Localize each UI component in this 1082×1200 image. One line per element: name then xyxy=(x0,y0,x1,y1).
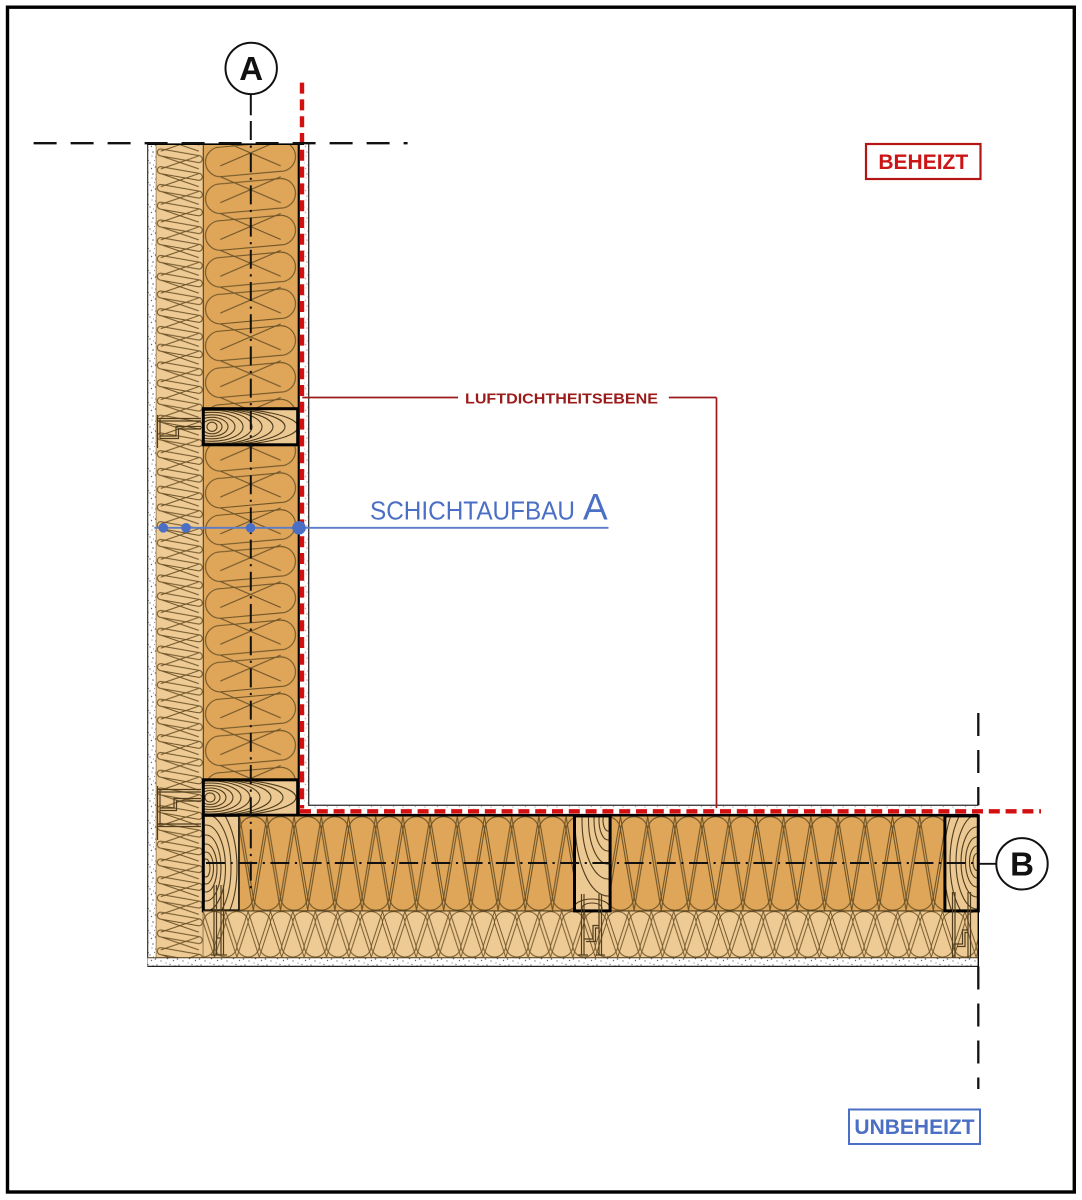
svg-text:UNBEHEIZT: UNBEHEIZT xyxy=(854,1116,974,1139)
svg-text:BEHEIZT: BEHEIZT xyxy=(878,151,968,174)
svg-text:SCHICHTAUFBAU: SCHICHTAUFBAU xyxy=(370,495,575,525)
svg-text:A: A xyxy=(583,486,608,527)
svg-text:LUFTDICHTHEITSEBENE: LUFTDICHTHEITSEBENE xyxy=(465,391,658,407)
svg-text:A: A xyxy=(239,50,263,87)
svg-text:B: B xyxy=(1010,845,1034,882)
